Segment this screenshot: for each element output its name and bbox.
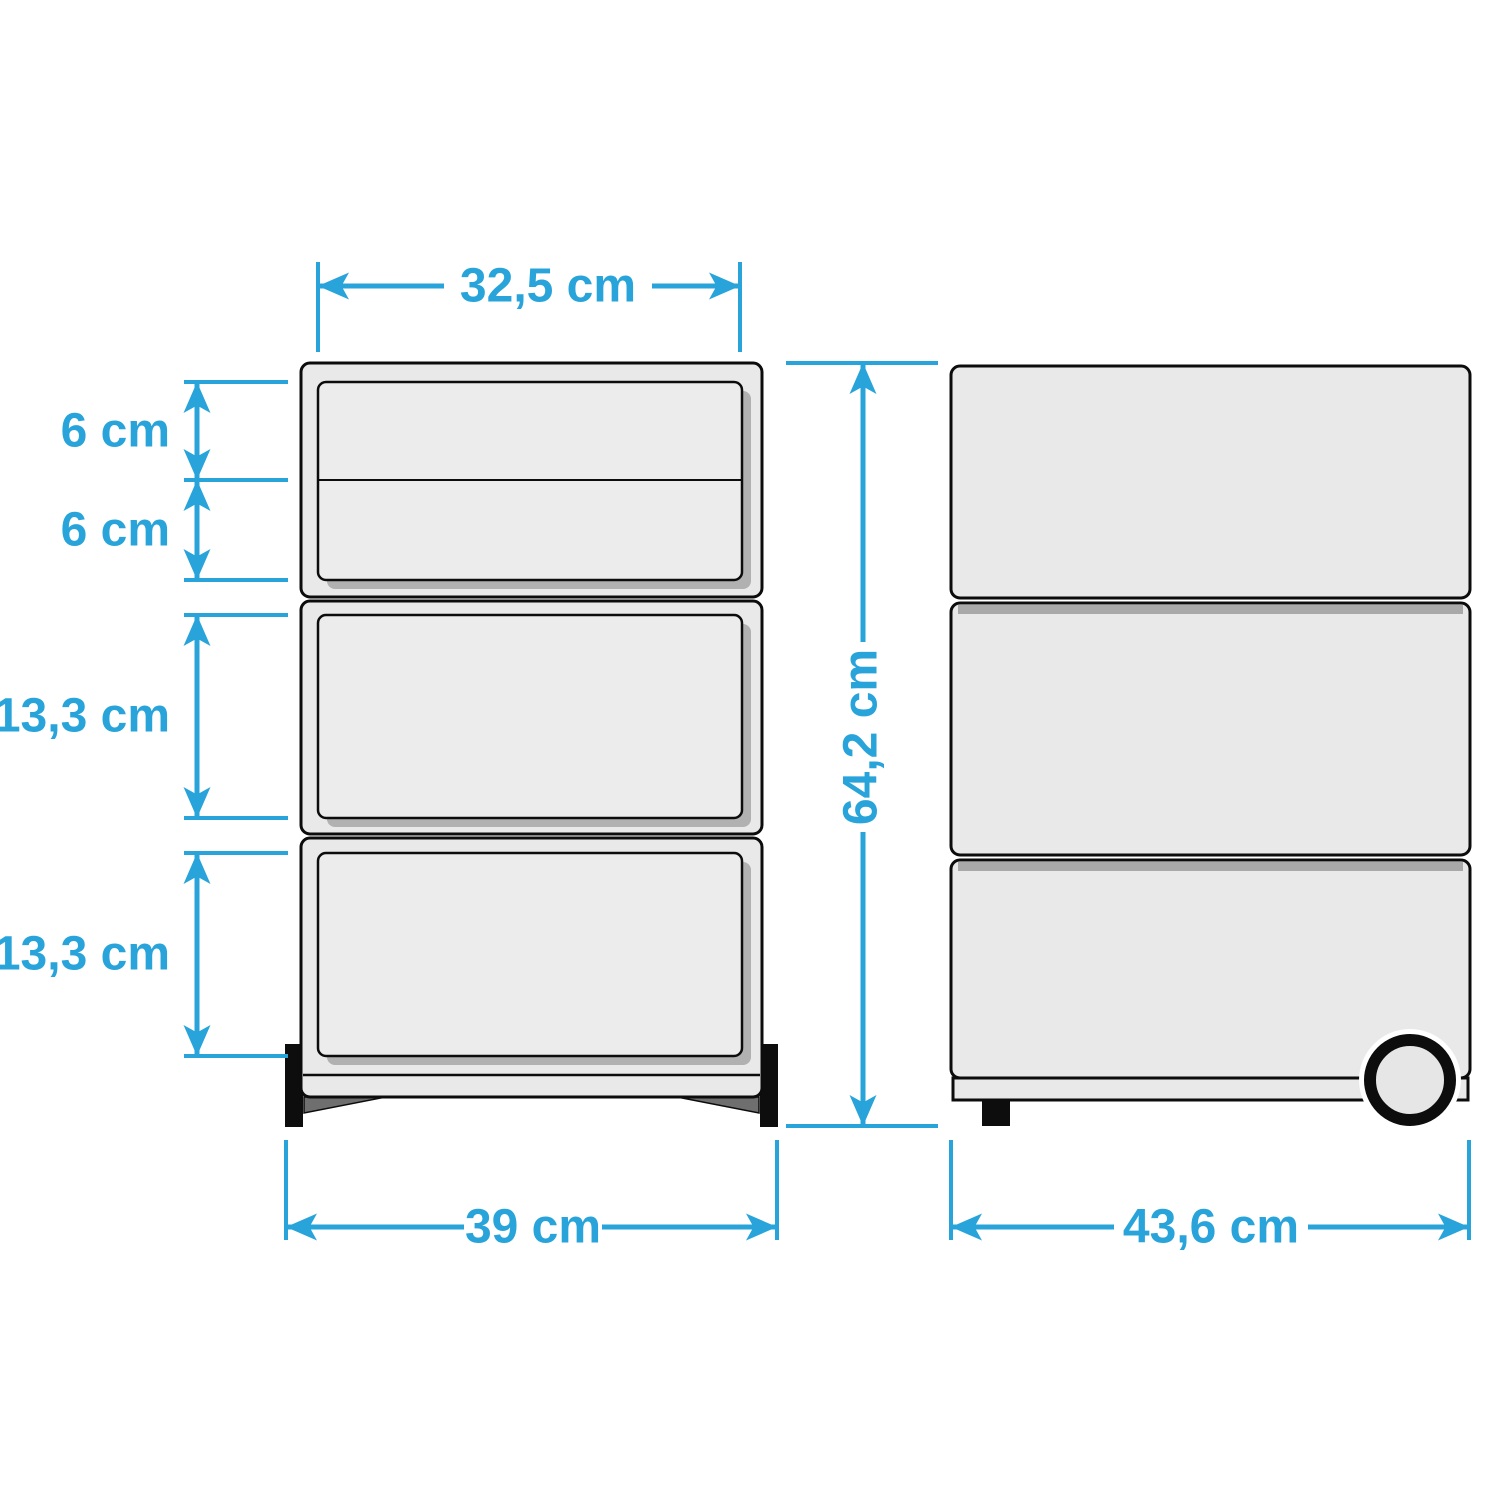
side-view	[951, 366, 1470, 1131]
dimension-total-width: 39 cm	[286, 1140, 777, 1254]
total-height-label: 64,2 cm	[835, 649, 888, 825]
drawer-front-bottom	[318, 853, 742, 1056]
dimension-drawer-width: 32,5 cm	[318, 260, 740, 353]
middle-drawer-height-label: 13,3 cm	[0, 690, 170, 743]
wheel	[1359, 1029, 1461, 1131]
side-panel-top	[951, 366, 1470, 598]
top-drawer-2-height-label: 6 cm	[61, 504, 170, 557]
drawer-width-label: 32,5 cm	[460, 260, 636, 313]
dimension-drawer-heights: 6 cm 6 cm 13,3 cm 13,3 cm	[0, 382, 288, 1056]
front-view	[285, 363, 778, 1127]
diagram-canvas: 32,5 cm 6 cm 6 cm 13,3 cm 13,3 cm	[0, 0, 1500, 1500]
top-drawer-1-height-label: 6 cm	[61, 405, 170, 458]
side-panel-middle	[951, 603, 1470, 855]
drawer-front-middle	[318, 615, 742, 818]
dimension-total-height: 64,2 cm	[786, 363, 938, 1126]
total-width-label: 39 cm	[465, 1201, 601, 1254]
total-depth-label: 43,6 cm	[1123, 1201, 1299, 1254]
dimension-total-depth: 43,6 cm	[951, 1140, 1469, 1254]
base-shadow-right	[677, 1097, 759, 1113]
side-front-foot	[982, 1100, 1010, 1126]
dimension-diagram: 32,5 cm 6 cm 6 cm 13,3 cm 13,3 cm	[0, 0, 1500, 1500]
bottom-drawer-height-label: 13,3 cm	[0, 928, 170, 981]
side-separator-bar	[958, 862, 1463, 871]
side-separator-bar	[958, 605, 1463, 614]
wheel-hub	[1376, 1046, 1444, 1114]
base-shadow-left	[304, 1097, 386, 1113]
